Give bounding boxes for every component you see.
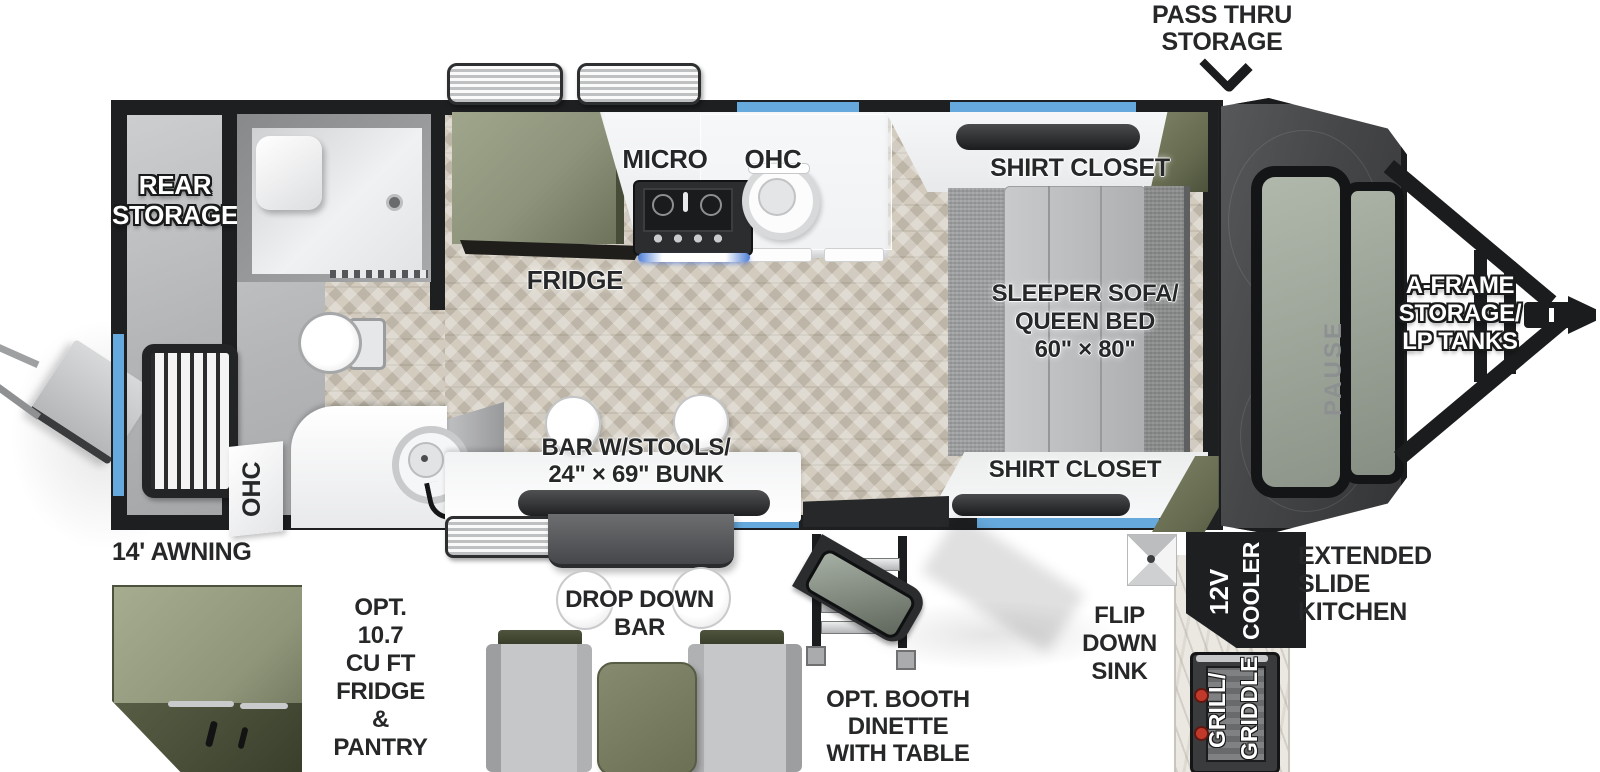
grill-label-line1: GRILL/ bbox=[1206, 660, 1234, 760]
label-line: 24" × 69" BUNK bbox=[498, 461, 774, 488]
booth-table bbox=[597, 662, 697, 772]
label-line: 10.7 bbox=[318, 622, 443, 650]
stove-knobs bbox=[652, 234, 724, 243]
cooler-12v-label-line2: COOLER bbox=[1240, 540, 1272, 642]
floorplan-diagram: REAR STORAGE OHC FRIDGE MICRO OHC SHIRT … bbox=[0, 0, 1600, 772]
label-line: QUEEN BED bbox=[970, 308, 1200, 336]
opt-fridge-pantry-box bbox=[112, 585, 302, 772]
front-cap-brand-text: PAUSE bbox=[1322, 296, 1342, 441]
cooler-12v-label-line1: 12V bbox=[1206, 548, 1236, 636]
window-top-1 bbox=[737, 102, 859, 113]
label-line: A-FRAME bbox=[1380, 272, 1540, 300]
rear-storage-hatch bbox=[142, 344, 238, 498]
opt-fridge-pantry-label: OPT. 10.7 CU FT FRIDGE & PANTRY bbox=[318, 594, 443, 762]
booth-seat-right bbox=[688, 644, 802, 772]
opt-fridge-latch-strip-1 bbox=[168, 701, 234, 707]
shirt-closet-bottom-label: SHIRT CLOSET bbox=[965, 457, 1185, 484]
stove-burner-right bbox=[700, 194, 722, 216]
roof-vent-2 bbox=[577, 63, 701, 105]
extended-slide-kitchen-label: EXTENDED SLIDE KITCHEN bbox=[1298, 542, 1458, 626]
label-line: PASS THRU bbox=[1122, 2, 1322, 29]
window-rear bbox=[113, 334, 124, 496]
label-line: DOWN bbox=[1072, 630, 1167, 658]
sleeper-sofa-label: SLEEPER SOFA/ QUEEN BED 60" × 80" bbox=[970, 280, 1200, 364]
flip-down-sink-label: FLIP DOWN SINK bbox=[1072, 602, 1167, 686]
label-line: LP TANKS bbox=[1380, 328, 1540, 356]
fridge-label: FRIDGE bbox=[500, 266, 650, 295]
hitch-coupler-tip bbox=[1568, 296, 1596, 334]
shower-door-track bbox=[330, 270, 428, 278]
bar-counter-top bbox=[518, 490, 770, 516]
stove-burner-left bbox=[652, 194, 674, 216]
wall-bath-kitchen bbox=[430, 100, 445, 310]
booth-seat-left bbox=[486, 644, 592, 772]
shirt-closet-top-label: SHIRT CLOSET bbox=[955, 154, 1205, 182]
label-line: OPT. BOOTH bbox=[808, 686, 988, 713]
entry-steps-foot-right bbox=[896, 650, 916, 670]
shower-seat bbox=[256, 136, 322, 210]
toilet-bowl bbox=[298, 312, 362, 374]
label-line: SLIDE bbox=[1298, 570, 1458, 598]
bath-sink-drain bbox=[421, 455, 428, 462]
label-line: STORAGE bbox=[105, 200, 245, 230]
label-line: & bbox=[318, 706, 443, 734]
entry-steps-foot-left bbox=[806, 646, 826, 666]
bar-bunk-label: BAR W/STOOLS/ 24" × 69" BUNK bbox=[498, 434, 774, 488]
drop-down-bar-shelf bbox=[548, 514, 734, 568]
kitchen-ohc-label: OHC bbox=[728, 145, 818, 174]
label-line: STORAGE/ bbox=[1380, 300, 1540, 328]
label-line: SINK bbox=[1072, 658, 1167, 686]
roof-vent-1 bbox=[447, 63, 563, 105]
window-top-2 bbox=[950, 102, 1136, 113]
grill-label-line2: GRIDDLE bbox=[1238, 660, 1266, 760]
rear-storage-label: REAR STORAGE bbox=[105, 170, 245, 230]
label-line: CU FT bbox=[318, 650, 443, 678]
stove-center-slot bbox=[683, 192, 688, 212]
label-line: FLIP bbox=[1072, 602, 1167, 630]
label-line: OPT. bbox=[318, 594, 443, 622]
window-bottom-2 bbox=[977, 517, 1159, 528]
flip-down-sink-drain bbox=[1147, 555, 1155, 563]
closet-rod-top bbox=[956, 124, 1140, 150]
booth-dinette-label: OPT. BOOTH DINETTE WITH TABLE bbox=[808, 686, 988, 767]
label-line: KITCHEN bbox=[1298, 598, 1458, 626]
label-line: EXTENDED bbox=[1298, 542, 1458, 570]
a-frame-label: A-FRAME STORAGE/ LP TANKS bbox=[1380, 272, 1540, 356]
fridge bbox=[452, 112, 624, 244]
opt-fridge-top-face bbox=[112, 585, 306, 707]
label-line: PANTRY bbox=[318, 734, 443, 762]
label-line: DINETTE bbox=[808, 713, 988, 740]
label-line: 60" × 80" bbox=[970, 336, 1200, 364]
closet-rod-bottom bbox=[952, 494, 1130, 516]
bath-ohc-label: OHC bbox=[240, 452, 272, 526]
micro-label: MICRO bbox=[598, 145, 732, 174]
label-line: BAR W/STOOLS/ bbox=[498, 434, 774, 461]
kitchen-shelf-tab-1 bbox=[746, 248, 812, 262]
awning-label: 14' AWNING bbox=[112, 538, 292, 566]
awning-roller bbox=[445, 516, 557, 558]
label-line: SLEEPER SOFA/ bbox=[970, 280, 1200, 308]
label-line: REAR bbox=[105, 170, 245, 200]
kitchen-sink-basin bbox=[758, 178, 796, 216]
label-line: DROP DOWN bbox=[552, 586, 727, 614]
shower-drain bbox=[386, 194, 403, 211]
opt-fridge-latch-strip-2 bbox=[240, 703, 288, 709]
hitch-pin bbox=[1549, 308, 1554, 322]
label-line: WITH TABLE bbox=[808, 740, 988, 767]
stove-glow-bar bbox=[638, 253, 750, 262]
label-line: FRIDGE bbox=[318, 678, 443, 706]
kitchen-shelf-tab-2 bbox=[824, 248, 884, 262]
